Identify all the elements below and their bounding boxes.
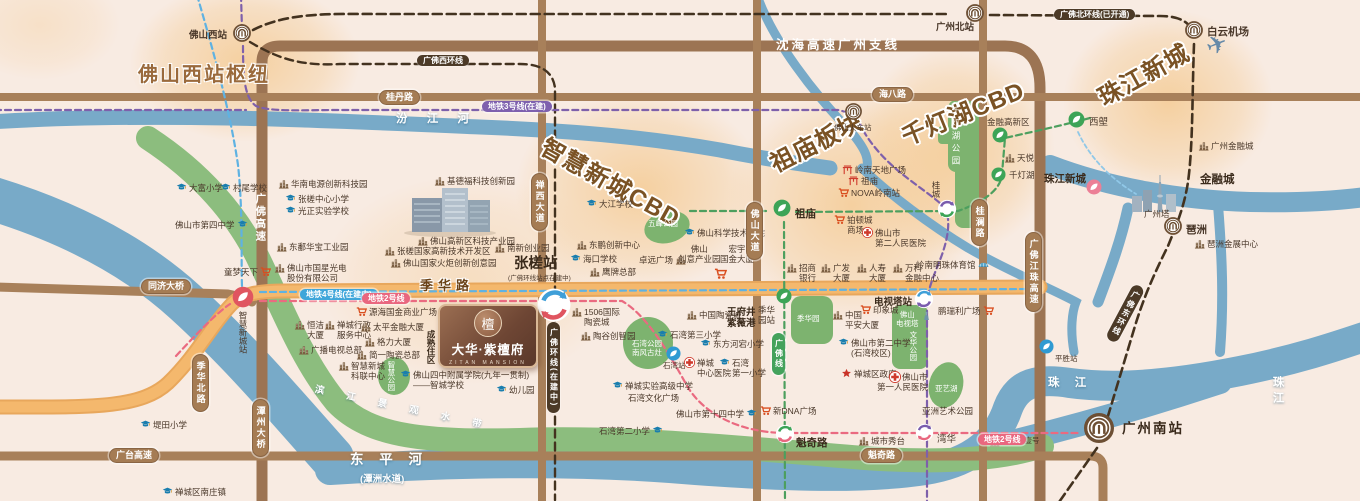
cap-icon <box>285 193 296 204</box>
stad-icon <box>978 259 989 270</box>
label-zhangcha-station: 张槎站 <box>514 256 558 273</box>
label-zhujiang-river-text: 珠 江 <box>1048 377 1092 391</box>
pill-chanxi-avenue-text: 禅西大道 <box>534 180 545 224</box>
bld-icon <box>786 262 797 273</box>
foshan-west-station-icon <box>233 25 251 42</box>
label-pengruili-plaza: 鹏瑞利广场 <box>938 306 994 316</box>
label-shiwan-station: 石湾站 <box>663 362 686 371</box>
label-guangzhou-north-station-text: 广州北站 <box>936 22 974 33</box>
label-zhihui-park-text: 智慧公园 <box>386 361 395 391</box>
star-icon <box>841 368 852 379</box>
label-yuanhai-guojin-plaza: 源海国金商业广场 <box>356 307 437 317</box>
label-shiwan-park: 石湾公园 南风古灶 <box>632 340 662 358</box>
m-blue-icon <box>1039 339 1054 354</box>
bld-icon <box>324 319 335 330</box>
zhangcha-interchange-icon <box>536 288 572 323</box>
label-jianyi-ceramics-hq: 简一陶瓷总部 <box>356 350 420 360</box>
label-new-dna-plaza: 新DNA广场 <box>760 406 816 416</box>
label-wenhua-park: 文华公园 <box>908 331 917 361</box>
cart-icon <box>260 266 271 277</box>
pill-tanzhou-bridge: 潭州大桥 <box>252 399 269 457</box>
label-zhangcha-hitech-zone-text: 张槎国家高新技术开发区 <box>397 246 491 256</box>
label-yingpai-hq: 鹰牌总部 <box>589 267 636 277</box>
label-pingsheng-station: 平胜站 <box>1055 355 1078 364</box>
bld-icon <box>384 245 395 256</box>
bld-icon <box>360 321 371 332</box>
label-baiyun-airport: 白云机场 <box>1207 26 1249 38</box>
pill-guangfo-line: 广佛线 <box>772 333 785 375</box>
label-foshan-railway-station: 佛山火车站 <box>834 124 872 133</box>
cart-icon <box>760 405 771 416</box>
label-zhujiang-river-v: 珠江 <box>1270 376 1284 407</box>
m-green-icon <box>1068 111 1085 128</box>
label-dongpo-huabao-park: 东鄱华宝工业园 <box>276 242 349 252</box>
pill-chanxi-avenue: 禅西大道 <box>531 173 548 231</box>
label-yuanhai-guojin-plaza-text: 源海国金商业广场 <box>369 307 437 317</box>
label-pingan-tower: 中国 平安大厦 <box>832 310 879 330</box>
baiyun-airport-icon <box>1185 22 1203 39</box>
label-dajiang-school-text: 大江学校 <box>599 199 633 209</box>
kuiqi-station-icon <box>775 425 795 444</box>
m-red-icon <box>232 286 254 308</box>
label-tongmeng-world: 童梦天下 <box>224 267 271 277</box>
bld-icon <box>1194 238 1205 249</box>
label-tanzhou-waterway: (潭洲水道) <box>360 474 404 485</box>
cart-icon <box>838 187 849 198</box>
bld-icon <box>589 266 600 277</box>
label-jihua-road: 季华路 <box>420 278 474 293</box>
bld-icon <box>686 309 697 320</box>
guangzhou-south-station-icon <box>1084 414 1114 443</box>
m-blue-icon <box>666 346 681 361</box>
label-foshan-no2-middle: 佛山市第二中学 (石湾校区) <box>838 338 911 358</box>
x-bp-icon <box>914 289 934 309</box>
label-financial-hitech-zone: 金融高新区 <box>987 117 1030 127</box>
label-shiwan-no2-primary-text: 石湾第二小学 <box>599 426 650 436</box>
label-fenjiang-river-text: 汾 江 河 <box>396 113 477 127</box>
label-dafu-primary: 大富小学 <box>176 183 223 193</box>
bld-icon <box>294 319 305 330</box>
label-cunwei-school: 村尾学校 <box>220 183 267 193</box>
label-chancheng-exp-high: 禅城实验高级中学 <box>612 381 693 391</box>
pill-guangfo-line-text: 广佛线 <box>774 339 783 369</box>
bld-icon <box>856 262 867 273</box>
label-tongmeng-world-text: 童梦天下 <box>224 267 258 277</box>
tower-icon <box>921 310 932 321</box>
pill-tongji-bridge: 同济大桥 <box>141 279 191 294</box>
label-titian-primary-text: 堤田小学 <box>153 420 187 430</box>
label-foshan-west-station-text: 佛山西站 <box>189 30 227 41</box>
pill-tanzhou-bridge-text: 潭州大桥 <box>255 406 266 450</box>
pill-guangfo-east-loop: 广佛东环线 <box>1105 283 1146 344</box>
label-cunwei-school-text: 村尾学校 <box>233 183 267 193</box>
label-shenhai-expressway-text: 沈海高速广州支线 <box>776 38 900 53</box>
label-guoxing-optoelectronics: 佛山市国星光电 股份有限公司 <box>274 263 347 283</box>
pill-guangtai-expressway-text: 广台高速 <box>116 450 152 461</box>
bld-icon <box>580 330 591 341</box>
label-guicheng-station-text: 桂城 <box>931 181 941 198</box>
label-shenhai-expressway: 沈海高速广州支线 <box>776 38 900 53</box>
x-gp-icon <box>775 424 795 444</box>
label-qiandenghu-cbd-text: 千灯湖CBD <box>898 77 1029 152</box>
pill-guidan-road-text: 桂丹路 <box>386 92 413 103</box>
label-tanzhou-waterway-text: (潭洲水道) <box>360 474 404 485</box>
bld-icon <box>276 241 287 252</box>
rail-icon <box>966 4 984 22</box>
label-nanzhuang-town-text: 禅城区南庄镇 <box>175 487 226 497</box>
pill-guangfo-west-loop: 广佛西环线 <box>417 55 469 66</box>
label-lingnan-pearl-stadium-text: 岭南明珠体育馆 <box>916 260 976 270</box>
label-city-show-stage-text: 城市秀台 <box>871 436 905 446</box>
cross-icon <box>862 227 873 238</box>
cap-icon <box>176 182 187 193</box>
label-jihua-park: 季华园 <box>797 315 820 324</box>
bld-icon <box>832 309 843 320</box>
foshan-railway-station-icon <box>845 104 862 120</box>
label-tianyue-text: 天悦 <box>1017 153 1034 163</box>
label-foshan-creative-park: 佛山 创意产业园 <box>678 244 721 264</box>
label-guangfo-expressway-text: 广佛高速 <box>254 193 266 243</box>
label-smart-city-kelian-center: 智慧新城 科联中心 <box>338 361 385 381</box>
bld-icon <box>356 349 367 360</box>
label-guangzhou-south-station-text: 广州南站 <box>1122 421 1184 437</box>
label-taogu-park: 陶谷创智园 <box>580 331 636 341</box>
cap-icon <box>162 486 173 497</box>
label-zumiao-station: 祖庙 <box>795 208 816 220</box>
label-lingnan-tiandi-text: 岭南天地广场 <box>855 165 906 175</box>
label-zhihui-xincheng-station-text: 智慧新城站 <box>238 311 248 354</box>
pill-haiba-road: 海八路 <box>872 87 913 102</box>
m-green-icon <box>773 199 791 217</box>
cross-icon <box>684 357 695 368</box>
x-pp-icon <box>915 423 934 442</box>
label-zhangcha-station-sub-text: (广佛环线站点在建中) <box>508 275 571 283</box>
label-foshan-no2-middle-text: 佛山市第二中学 (石湾校区) <box>851 338 911 358</box>
zhihui-xincheng-station-icon <box>232 287 254 308</box>
label-qiandenghu-park: 千灯湖公园 <box>951 106 961 169</box>
label-fenjiang-river: 汾 江 河 <box>396 113 477 127</box>
pill-guilan-road: 桂澜路 <box>971 199 988 246</box>
cap-icon <box>838 337 849 348</box>
gate-icon <box>848 175 859 186</box>
label-foshan-west-hub: 佛山西站枢纽 <box>138 64 270 88</box>
pill-guangfo-north-loop: 广佛北环线(已开通) <box>1054 9 1135 20</box>
label-foshan-tv-tower: 佛山 电视塔 <box>896 311 932 329</box>
label-nanzhuang-town: 禅城区南庄镇 <box>162 487 226 497</box>
m-green-icon <box>991 167 1006 182</box>
bld-icon <box>892 262 903 273</box>
pill-jihua-north-road: 季华北路 <box>192 354 209 412</box>
label-guangzhou-financial-city: 广州金融城 <box>1198 141 1254 151</box>
label-new-dna-plaza-text: 新DNA广场 <box>773 406 816 416</box>
cap-icon <box>285 205 296 216</box>
pill-tongji-bridge-text: 同济大桥 <box>148 281 184 292</box>
label-zhujiang-new-town-station: 珠江新城 <box>1044 173 1086 185</box>
cart-icon <box>356 306 367 317</box>
label-guicheng-station: 桂城 <box>931 181 941 198</box>
m-pink-icon <box>1086 179 1102 195</box>
project-logo: 檀 大华·紫檀府 ZITAN MANSION <box>438 304 538 368</box>
rail-icon <box>845 103 862 120</box>
label-foshan-no1-hospital-1: 佛山市 <box>902 372 928 382</box>
pill-guangfo-west-loop-text: 广佛西环线 <box>423 56 463 65</box>
label-jihua-park-text: 季华园 <box>797 315 820 324</box>
pill-guangfo-loop-west-text: 广佛环线(在建中) <box>549 328 558 407</box>
label-chancheng-exp-high-text: 禅城实验高级中学 <box>625 381 693 391</box>
label-broadcast-tv-hq: 广播电视总部 <box>298 345 362 355</box>
guangzhou-north-station-icon <box>966 5 984 22</box>
cap-icon <box>570 253 581 264</box>
label-shiwan-park-text: 石湾公园 南风古灶 <box>632 340 662 358</box>
label-geli-tower-text: 格力大厦 <box>377 337 411 347</box>
label-zhangcha-central-primary-text: 张槎中心小学 <box>298 194 349 204</box>
label-foshan-west-hub-text: 佛山西站枢纽 <box>138 64 270 88</box>
bld-icon <box>434 175 445 186</box>
label-mature-community-text: 成熟住区 <box>426 330 436 364</box>
label-zhihui-park: 智慧公园 <box>386 361 395 391</box>
bld-icon <box>576 239 587 250</box>
cap-icon <box>400 369 411 380</box>
label-asian-art-park-text: 亚洲艺术公园 <box>922 406 973 416</box>
label-smart-city-kelian-center-text: 智慧新城 科联中心 <box>351 361 385 381</box>
label-zhujiang-river-v-text: 珠江 <box>1270 376 1284 407</box>
label-dongpo-huabao-park-text: 东鄱华宝工业园 <box>289 242 349 252</box>
label-dafu-primary-text: 大富小学 <box>189 183 223 193</box>
label-jihuayuan-station-text: 季华 园站 <box>758 305 775 325</box>
label-wufeng-park: 五峰公园 <box>648 220 678 229</box>
bld-icon <box>571 306 582 317</box>
label-foshan-no4-middle-text: 佛山市第四中学 <box>175 220 235 230</box>
label-guangzheng-school-text: 光正实验学校 <box>298 206 349 216</box>
label-kuiqi-road-station-text: 魁奇路 <box>796 437 828 449</box>
bld-icon <box>298 344 309 355</box>
label-wanhua-station-text: 湾华 <box>937 434 956 445</box>
label-zhangcha-central-primary: 张槎中心小学 <box>285 194 349 204</box>
labels-layer: 佛山西站佛山西站枢纽广佛西环线桂丹路地铁3号线(在建)汾 江 河沈海高速广州支线… <box>0 0 1360 501</box>
label-kindergarten-text: 幼儿园 <box>509 385 535 395</box>
label-jihuayuan-station: 季华 园站 <box>758 305 775 325</box>
gate-icon <box>842 164 853 175</box>
label-zhuoyuan-plaza-text: 卓远广场 <box>639 255 673 265</box>
label-foshan-creative-park-text: 佛山 创意产业园 <box>678 244 721 264</box>
label-kindergarten: 幼儿园 <box>496 385 535 395</box>
cart-icon <box>834 214 845 225</box>
cap-icon <box>237 219 248 230</box>
label-shiwan-no2-primary: 石湾第二小学 <box>599 426 663 436</box>
label-pazhou-exhibition-text: 琶洲金展中心 <box>1207 239 1258 249</box>
label-riverside-belt: 滨 江 景 观 水 带 <box>314 384 493 432</box>
label-torch-innovation-park: 佛山国家火炬创新创意园 <box>390 258 497 268</box>
label-xilang: 西塱 <box>1089 117 1108 128</box>
label-guangfa-tower: 广发 大厦 <box>820 263 850 283</box>
label-shiwan-no1-primary-text: 石湾 第一小学 <box>732 358 766 378</box>
label-qiandenghu-station: 千灯湖 <box>1009 170 1035 180</box>
label-kuiqi-road-station: 魁奇路 <box>796 437 828 449</box>
project-name-en: ZITAN MANSION <box>440 360 536 366</box>
bld-icon <box>1004 152 1015 163</box>
cap-icon <box>719 357 730 368</box>
label-zhujiang-new-town-station-text: 珠江新城 <box>1044 173 1086 185</box>
label-pazhou-exhibition: 琶洲金展中心 <box>1194 239 1258 249</box>
label-financial-hitech-zone-text: 金融高新区 <box>987 117 1030 127</box>
label-dongping-river: 东 平 河 <box>350 452 428 468</box>
zumiao-station-icon <box>773 200 791 217</box>
pill-guangfo-jiangzhu-expwy: 广佛江珠高速 <box>1025 232 1042 312</box>
label-jihua-road-text: 季华路 <box>420 278 474 293</box>
label-zhaoshang-bank: 招商 银行 <box>786 263 816 283</box>
pill-guangfo-north-loop-text: 广佛北环线(已开通) <box>1060 10 1129 19</box>
label-zhujiang-new-town-area-text: 珠江新城 <box>1094 40 1195 113</box>
label-foshan-no1-hospital-2: 第一人民医院 <box>877 382 928 392</box>
label-nova-lingnan-text: NOVA岭南站 <box>851 188 900 198</box>
rail-icon <box>1164 217 1182 235</box>
pill-metro-line2-south-text: 地铁2号线 <box>984 435 1020 444</box>
label-zhaoshang-bank-text: 招商 银行 <box>799 263 816 283</box>
bld-icon <box>338 360 349 371</box>
label-dongping-river-text: 东 平 河 <box>350 452 428 468</box>
cap-icon <box>657 329 668 340</box>
label-guangzhou-north-station: 广州北站 <box>936 22 974 33</box>
label-foshan-railway-station-text: 佛山火车站 <box>834 124 872 133</box>
label-jinrongcheng: 金融城 <box>1200 174 1235 188</box>
label-foshan-no1-hospital-2-text: 第一人民医院 <box>877 382 928 392</box>
label-titian-primary: 堤田小学 <box>140 420 187 430</box>
cap-icon <box>140 419 151 430</box>
label-lingnan-pearl-stadium: 岭南明珠体育馆 <box>916 260 989 270</box>
label-dongpeng-innovation: 东鹏创新中心 <box>576 240 640 250</box>
label-taiping-finance-tower-text: 太平金融大厦 <box>373 322 424 332</box>
label-yingpai-hq-text: 鹰牌总部 <box>602 267 636 277</box>
label-dongpeng-innovation-text: 东鹏创新中心 <box>589 240 640 250</box>
x-pg-icon <box>937 199 957 219</box>
label-jianyi-ceramics-hq-text: 简一陶瓷总部 <box>369 350 420 360</box>
bld-icon <box>417 235 428 246</box>
label-zhangcha-hitech-zone: 张槎国家高新技术开发区 <box>384 246 491 256</box>
label-1506-ceramics-text: 1506国际 陶瓷城 <box>584 307 620 327</box>
pill-metro-line3-text: 地铁3号线(在建) <box>488 102 546 111</box>
x-br-icon <box>536 287 572 323</box>
pill-guangfo-jiangzhu-expwy-text: 广佛江珠高速 <box>1028 239 1039 305</box>
label-lingnan-tiandi: 岭南天地广场 <box>842 165 906 175</box>
pill-foshan-avenue-text: 佛山大道 <box>749 209 760 253</box>
label-nanxin-startup-park-text: 南新创业园 <box>507 243 550 253</box>
bld-icon <box>1198 140 1209 151</box>
label-guangfa-tower-text: 广发 大厦 <box>833 263 850 283</box>
rail-icon <box>233 24 251 42</box>
cart-icon <box>983 305 994 316</box>
label-zumiao-temple: 祖庙 <box>848 176 878 186</box>
pingsheng-station-icon <box>1039 340 1054 354</box>
shiwan-station-icon <box>666 347 681 361</box>
wanhua-station-icon <box>915 424 934 442</box>
label-nova-lingnan: NOVA岭南站 <box>838 188 900 198</box>
project-seal-icon: 檀 <box>474 309 502 337</box>
label-mature-community: 成熟住区 <box>426 330 436 364</box>
label-zhujiang-river: 珠 江 <box>1048 377 1092 391</box>
label-haikou-school-text: 海口学校 <box>583 254 617 264</box>
rail-icon <box>1185 21 1203 39</box>
label-pazhou-text: 琶洲 <box>1186 224 1207 236</box>
label-guangzheng-school: 光正实验学校 <box>285 206 349 216</box>
label-asian-art-park: 亚洲艺术公园 <box>922 406 973 416</box>
label-foshan-no2-hospital: 佛山市 第二人民医院 <box>862 228 926 248</box>
rail-lg-icon <box>1084 413 1114 443</box>
label-torch-innovation-park-text: 佛山国家火炬创新创意园 <box>403 258 497 268</box>
label-wangfujing-ziweigang: 王府井 紫薇港 <box>727 307 756 329</box>
label-hengjie-tower-text: 恒洁 大厦 <box>307 320 324 340</box>
label-shiwan-station-text: 石湾站 <box>663 362 686 371</box>
label-baiyun-airport-text: 白云机场 <box>1207 26 1249 38</box>
label-huanan-power-park-text: 华南电源创新科技园 <box>291 179 368 189</box>
label-jidefu-tech-park-text: 基德福科技创新园 <box>447 176 515 186</box>
bld-icon <box>820 262 831 273</box>
bld-icon <box>390 257 401 268</box>
label-renshou-tower: 人寿 大厦 <box>856 263 886 283</box>
label-nanxin-startup-park: 南新创业园 <box>494 243 550 253</box>
label-yayi-lake-text: 亚艺湖 <box>935 385 958 394</box>
label-guoxing-optoelectronics-text: 佛山市国星光电 股份有限公司 <box>287 263 347 283</box>
cart-icon <box>714 267 727 280</box>
map-canvas: 佛山西站佛山西站枢纽广佛西环线桂丹路地铁3号线(在建)汾 江 河沈海高速广州支线… <box>0 0 1360 501</box>
pill-guidan-road: 桂丹路 <box>379 90 420 105</box>
pill-guilan-road-text: 桂澜路 <box>974 206 985 239</box>
label-pingsheng-station-text: 平胜站 <box>1055 355 1078 364</box>
pill-haiba-road-text: 海八路 <box>879 89 906 100</box>
bld-icon <box>858 435 869 446</box>
label-wangfujing-ziweigang-text: 王府井 紫薇港 <box>727 307 756 329</box>
jihuayuan-station-icon <box>776 289 792 304</box>
label-taogu-park-text: 陶谷创智园 <box>593 331 636 341</box>
pill-metro-line2-south: 地铁2号线 <box>978 434 1026 445</box>
label-foshan-no2-hospital-text: 佛山市 第二人民医院 <box>875 228 926 248</box>
label-zhihui-xincheng-station: 智慧新城站 <box>238 311 248 354</box>
pazhou-station-icon <box>1164 218 1182 235</box>
label-dongfang-hedang-primary: 东方河宕小学 <box>700 339 764 349</box>
label-foshan-west-station: 佛山西站 <box>189 30 227 41</box>
label-zumiao-station-text: 祖庙 <box>795 208 816 220</box>
label-pengruili-plaza-text: 鹏瑞利广场 <box>938 306 981 316</box>
label-taiping-finance-tower: 太平金融大厦 <box>360 322 424 332</box>
label-dajiang-school: 大江学校 <box>586 199 633 209</box>
pill-guangfo-east-loop-text: 广佛东环线 <box>1109 289 1141 338</box>
pill-guangfo-loop-west: 广佛环线(在建中) <box>547 322 560 413</box>
cap-icon <box>612 380 623 391</box>
mall-icon-chuangyiyuan <box>714 268 727 280</box>
label-wanhua-station: 湾华 <box>937 434 956 445</box>
cap-icon <box>652 425 663 436</box>
label-geli-tower: 格力大厦 <box>364 337 411 347</box>
pill-foshan-avenue: 佛山大道 <box>746 202 763 260</box>
label-shiwan-culture-plaza: 石湾文化广场 <box>628 393 679 403</box>
label-haikou-school: 海口学校 <box>570 254 617 264</box>
label-tianyue: 天悦 <box>1004 153 1034 163</box>
cap-icon <box>496 384 507 395</box>
label-shiwan-no1-primary: 石湾 第一小学 <box>719 358 766 378</box>
label-foshan-no1-hospital-1-text: 佛山市 <box>902 372 928 382</box>
label-foshan-no14-middle: 佛山市第十四中学 <box>676 409 757 419</box>
label-huanan-power-park: 华南电源创新科技园 <box>278 179 368 189</box>
label-wufeng-park-text: 五峰公园 <box>648 220 678 229</box>
label-riverside-belt-text: 滨 江 景 观 水 带 <box>314 384 493 432</box>
pill-guangtai-expressway: 广台高速 <box>109 448 159 463</box>
label-renshou-tower-text: 人寿 大厦 <box>869 263 886 283</box>
label-qiandenghu-cbd: 千灯湖CBD <box>898 77 1029 152</box>
pill-kuiqi-road-text: 魁奇路 <box>868 450 895 461</box>
pill-kuiqi-road: 魁奇路 <box>861 448 902 463</box>
label-shiwan-culture-plaza-text: 石湾文化广场 <box>628 393 679 403</box>
cap-icon <box>586 198 597 209</box>
label-zhujiang-new-town-area: 珠江新城 <box>1094 40 1195 113</box>
